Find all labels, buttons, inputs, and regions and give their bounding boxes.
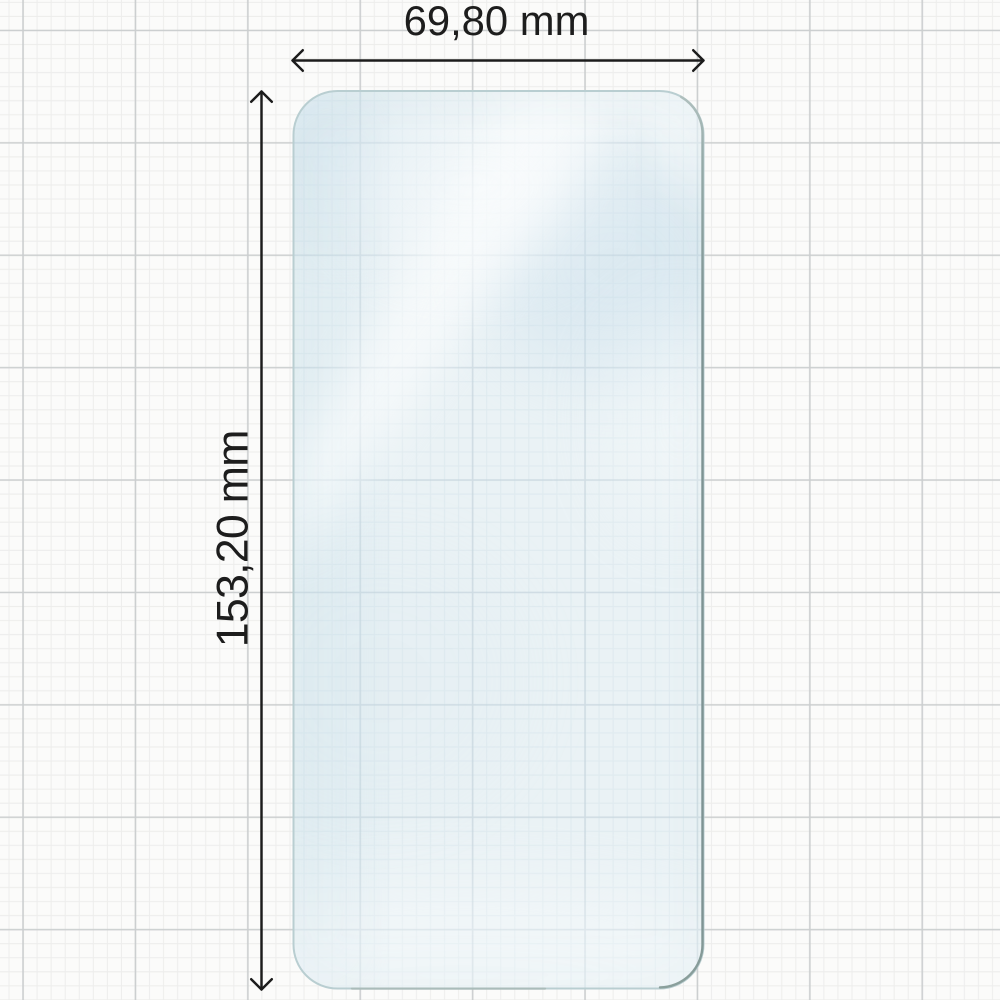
svg-text:153,20 mm: 153,20 mm: [207, 430, 257, 647]
svg-text:69,80 mm: 69,80 mm: [404, 0, 590, 44]
